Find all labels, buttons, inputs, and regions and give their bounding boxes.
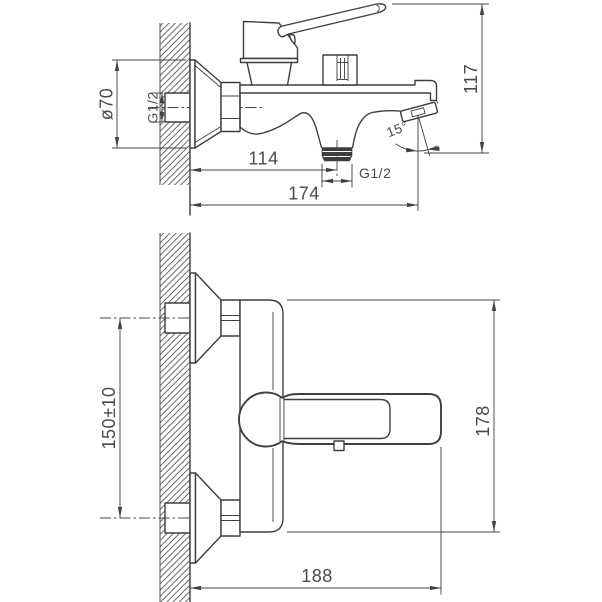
dim-outlet-thread: G1/2 [322,164,391,188]
dim-label-117: 117 [461,64,481,94]
dim-label-outlet-thread: G1/2 [359,165,391,181]
dim-label-inlet-thread: G1/2 [145,91,161,123]
dim-wall-to-shower-outlet: 114 [190,149,337,173]
lever-handle-side [278,4,386,37]
side-view: ø70 G1/2 114 G1/2 [97,4,490,215]
dim-label-188: 188 [301,566,333,586]
escutcheon-flange [190,60,240,148]
dim-label-114: 114 [248,149,278,169]
diverter-knob [323,55,357,85]
wall-section-front [100,233,258,602]
front-view: 150±10 178 188 [99,233,500,602]
dim-wall-to-spout: 174 [190,184,418,208]
dim-label-150: 150±10 [99,387,119,450]
wall-nut [221,83,240,132]
dim-label-flange-dia: ø70 [97,88,117,121]
faucet-dimensional-drawing: ø70 G1/2 114 G1/2 [0,0,602,602]
dim-label-174: 174 [288,184,320,204]
technical-drawing-canvas: ø70 G1/2 114 G1/2 [0,0,602,602]
spout-underside-left [240,113,322,148]
lever-tab [334,441,344,451]
dim-spout-angle: 15° [384,115,439,211]
faucet-body-front [239,300,441,532]
escutcheon-flange-bottom [190,473,240,563]
dim-label-178: 178 [473,405,493,437]
escutcheon-flange-top [190,273,240,363]
dim-inlet-spacing: 150±10 [99,318,122,518]
